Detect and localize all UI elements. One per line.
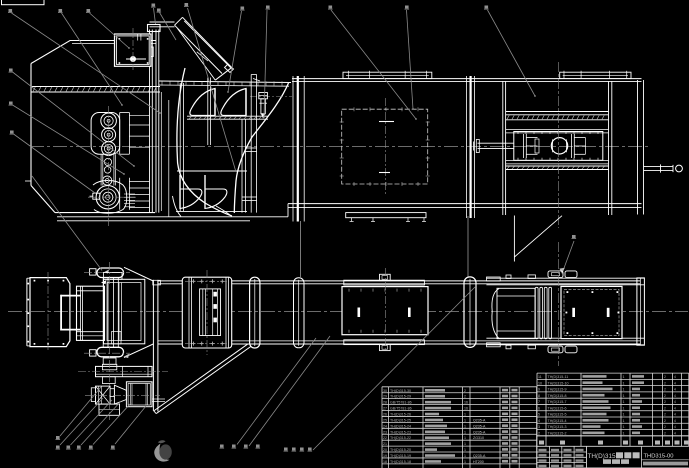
svg-text:22: 22 xyxy=(383,436,387,440)
svg-text:3: 3 xyxy=(538,425,540,429)
svg-text:TH(D)315-23: TH(D)315-23 xyxy=(390,430,411,434)
svg-text:TH(D)315-2: TH(D)315-2 xyxy=(548,431,567,435)
svg-text:1: 1 xyxy=(623,394,625,398)
svg-text:1: 1 xyxy=(623,388,625,392)
svg-text:TH(D)315-5: TH(D)315-5 xyxy=(548,413,567,417)
svg-text:GB/T5781-86: GB/T5781-86 xyxy=(390,407,412,411)
svg-text:5: 5 xyxy=(538,413,540,417)
svg-text:8: 8 xyxy=(538,394,540,398)
svg-text:2: 2 xyxy=(664,375,666,379)
svg-text:1: 1 xyxy=(623,431,625,435)
svg-text:2: 2 xyxy=(464,395,466,399)
svg-text:2: 2 xyxy=(538,431,540,435)
svg-text:11: 11 xyxy=(538,375,542,379)
svg-text:4: 4 xyxy=(674,375,676,379)
svg-text:4: 4 xyxy=(674,425,676,429)
svg-text:4: 4 xyxy=(674,388,676,392)
svg-text:25: 25 xyxy=(383,418,387,422)
svg-text:TH(D)315-25: TH(D)315-25 xyxy=(390,418,411,422)
svg-text:THD315-00: THD315-00 xyxy=(644,453,674,459)
svg-text:Q235-A: Q235-A xyxy=(473,430,486,434)
svg-text:16: 16 xyxy=(464,407,468,411)
svg-text:1: 1 xyxy=(464,460,466,464)
svg-text:TH(D)315-3: TH(D)315-3 xyxy=(548,425,567,429)
svg-text:18: 18 xyxy=(383,460,387,464)
svg-text:TH(D)315-22: TH(D)315-22 xyxy=(390,436,411,440)
svg-text:TH(D)315-19: TH(D)315-19 xyxy=(390,454,411,458)
svg-text:TH(D)315-6: TH(D)315-6 xyxy=(548,406,567,410)
svg-text:2: 2 xyxy=(664,394,666,398)
svg-text:TH(D)315-10: TH(D)315-10 xyxy=(548,381,569,385)
svg-text:Q235-A: Q235-A xyxy=(473,418,486,422)
svg-text:TH(D)315-7: TH(D)315-7 xyxy=(548,400,567,404)
svg-text:21: 21 xyxy=(383,442,387,446)
svg-text:24: 24 xyxy=(383,424,387,428)
svg-text:19: 19 xyxy=(383,454,387,458)
svg-text:TH(D)315-29: TH(D)315-29 xyxy=(390,395,411,399)
svg-text:1: 1 xyxy=(623,400,625,404)
svg-text:1: 1 xyxy=(623,425,625,429)
svg-text:2: 2 xyxy=(664,413,666,417)
svg-text:4: 4 xyxy=(674,406,676,410)
svg-text:28: 28 xyxy=(383,401,387,405)
svg-text:4: 4 xyxy=(674,400,676,404)
svg-text:TH(D)315: TH(D)315 xyxy=(588,453,616,460)
svg-text:1: 1 xyxy=(464,454,466,458)
svg-text:4: 4 xyxy=(538,419,540,423)
svg-text:9: 9 xyxy=(538,388,540,392)
svg-text:1: 1 xyxy=(623,375,625,379)
svg-text:TH(D)315-11: TH(D)315-11 xyxy=(548,375,569,379)
svg-text:1: 1 xyxy=(464,430,466,434)
svg-text:10: 10 xyxy=(538,381,542,385)
svg-text:16: 16 xyxy=(464,401,468,405)
svg-text:TH(D)315-30: TH(D)315-30 xyxy=(390,389,411,393)
svg-text:Q235-A: Q235-A xyxy=(473,454,486,458)
svg-text:1: 1 xyxy=(464,418,466,422)
svg-text:27: 27 xyxy=(383,407,387,411)
svg-text:TH(D)315-24: TH(D)315-24 xyxy=(390,424,411,428)
svg-text:1: 1 xyxy=(623,406,625,410)
svg-text:1: 1 xyxy=(464,442,466,446)
svg-text:2: 2 xyxy=(664,425,666,429)
svg-text:TH(D)315-8: TH(D)315-8 xyxy=(548,394,567,398)
svg-text:4: 4 xyxy=(674,419,676,423)
svg-text:20: 20 xyxy=(383,448,387,452)
svg-text:7: 7 xyxy=(538,400,540,404)
svg-text:4: 4 xyxy=(674,394,676,398)
svg-text:29: 29 xyxy=(383,395,387,399)
svg-text:TH(D)315-18: TH(D)315-18 xyxy=(390,460,411,464)
svg-text:26: 26 xyxy=(383,413,387,417)
svg-text:Q235-A: Q235-A xyxy=(473,424,486,428)
svg-text:30: 30 xyxy=(383,389,387,393)
svg-text:GB/T5781-86: GB/T5781-86 xyxy=(390,401,412,405)
svg-text:TH(D)315-26: TH(D)315-26 xyxy=(390,413,411,417)
svg-text:1: 1 xyxy=(464,448,466,452)
svg-text:4: 4 xyxy=(674,413,676,417)
svg-text:ZG310: ZG310 xyxy=(473,436,484,440)
svg-text:6: 6 xyxy=(538,406,540,410)
svg-text:2: 2 xyxy=(664,431,666,435)
svg-text:1: 1 xyxy=(464,413,466,417)
svg-text:4: 4 xyxy=(674,381,676,385)
svg-text:HT200: HT200 xyxy=(473,460,484,464)
svg-text:4: 4 xyxy=(674,431,676,435)
svg-text:1: 1 xyxy=(623,381,625,385)
svg-text:23: 23 xyxy=(383,430,387,434)
svg-text:2: 2 xyxy=(664,388,666,392)
svg-text:2: 2 xyxy=(664,400,666,404)
svg-text:2: 2 xyxy=(664,381,666,385)
svg-text:1: 1 xyxy=(464,436,466,440)
svg-text:2: 2 xyxy=(664,419,666,423)
svg-text:1: 1 xyxy=(623,419,625,423)
svg-text:1: 1 xyxy=(464,424,466,428)
svg-text:2: 2 xyxy=(464,389,466,393)
svg-text:TH(D)315-9: TH(D)315-9 xyxy=(548,388,567,392)
svg-text:1: 1 xyxy=(623,413,625,417)
svg-text:TH(D)315-20: TH(D)315-20 xyxy=(390,448,411,452)
svg-text:2: 2 xyxy=(664,406,666,410)
svg-text:TH(D)315-4: TH(D)315-4 xyxy=(548,419,567,423)
